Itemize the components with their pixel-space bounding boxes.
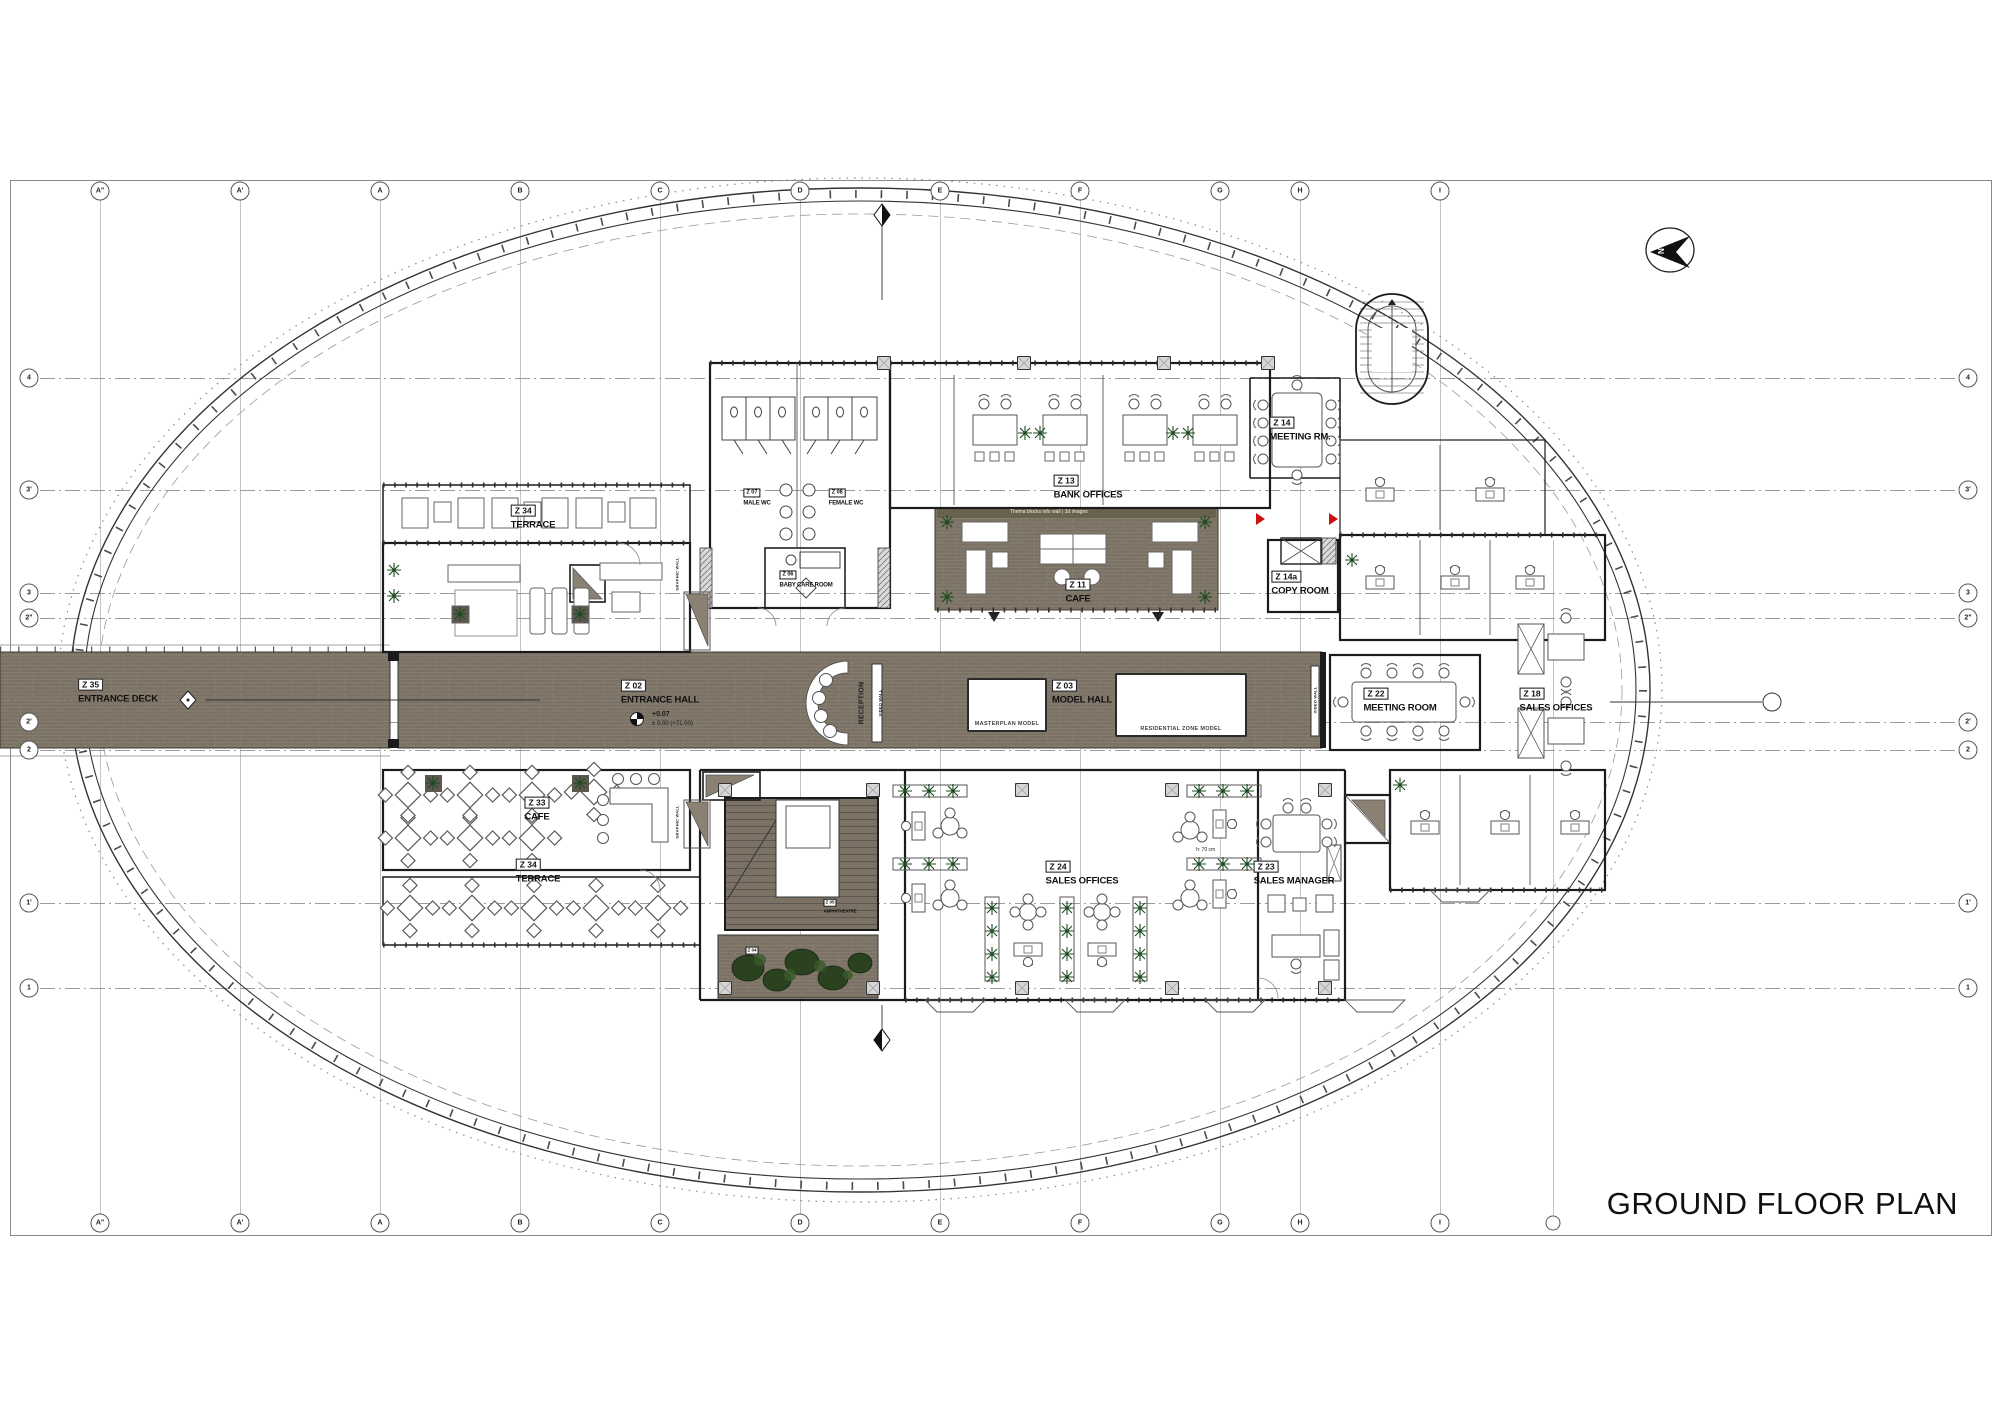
grid-column-marker-top: I <box>1431 182 1450 201</box>
bay-windows <box>925 890 1490 1012</box>
room-label-z-04: Z 04 <box>745 940 758 957</box>
room-name: BABY CARE ROOM <box>779 582 832 588</box>
room-name: COPY ROOM <box>1271 586 1328 596</box>
room-name: ENTRANCE HALL <box>621 695 699 705</box>
grid-row-marker-left: 4 <box>20 369 39 388</box>
wall-text: VIDEO WALL <box>878 690 883 717</box>
room-name: TERRACE <box>511 520 556 530</box>
annotation-text: Thema blocks info wall | 3d images <box>1010 509 1088 515</box>
room-id-badge: Z 33 <box>524 797 549 809</box>
grid-column-marker-bottom: G <box>1211 1214 1230 1233</box>
room-name: SALES OFFICES <box>1520 703 1593 713</box>
room-id-badge: Z 06 <box>779 570 796 579</box>
grid-column-marker-bottom: C <box>651 1214 670 1233</box>
room-name: MEETING ROOM <box>1363 703 1436 713</box>
room-id-badge: Z 23 <box>1254 861 1279 873</box>
grid-row-marker-left: 1' <box>20 894 39 913</box>
room-id-badge: Z 13 <box>1054 475 1079 487</box>
svg-text:N: N <box>1657 248 1666 254</box>
bank-office-desks <box>973 395 1237 461</box>
room-id-badge: Z 02 <box>621 680 646 692</box>
room-name: MODEL HALL <box>1052 695 1112 705</box>
room-name: SALES OFFICES <box>1046 876 1119 886</box>
grid-row-marker-right: 1 <box>1959 979 1978 998</box>
north-arrow-icon: N <box>1646 228 1694 272</box>
room-label-z-22: Z 22MEETING ROOM <box>1363 685 1436 714</box>
grid-row-marker-left: 3' <box>20 481 39 500</box>
room-id-badge: Z 04 <box>745 947 758 955</box>
room-label-z-08: Z 08FEMALE WC <box>829 481 864 506</box>
room-id-badge: Z 03 <box>1052 680 1077 692</box>
grid-column-marker-bottom: I <box>1431 1214 1450 1233</box>
grid-row-marker-left: 1 <box>20 979 39 998</box>
grid-row-marker-right: 3 <box>1959 584 1978 603</box>
wall-text: GRAPHIC WALL <box>675 805 680 838</box>
grid-row-marker-right: 1' <box>1959 894 1978 913</box>
grid-column-marker-bottom: A' <box>231 1214 250 1233</box>
grid-column-marker-bottom: D <box>791 1214 810 1233</box>
annotation-text: ± 0.00 (+71.00) <box>652 721 693 727</box>
room-id-badge: Z 14a <box>1271 571 1301 583</box>
wall-text: RECEPTION <box>859 682 866 725</box>
grid-column-marker-top: A <box>371 182 390 201</box>
room-id-badge: Z 05 <box>823 899 836 907</box>
room-name: MEETING RM. <box>1269 432 1330 442</box>
drawing-title: GROUND FLOOR PLAN <box>1607 1186 1958 1222</box>
room-label-z-06: Z 06BABY CARE ROOM <box>779 563 832 588</box>
grid-column-marker-top: F <box>1071 182 1090 201</box>
room-label-z-07: Z 07MALE WC <box>743 481 770 506</box>
grid-extra-marker <box>1546 1216 1561 1231</box>
annotation-text: h: 70 cm <box>1196 847 1215 853</box>
room-name: MALE WC <box>743 500 770 506</box>
room-id-badge: Z 08 <box>829 488 846 497</box>
entrance-deck-floor <box>0 645 1781 756</box>
room-name: FEMALE WC <box>829 500 864 506</box>
room-name: SALES MANAGER <box>1254 876 1335 886</box>
model-table: RESIDENTIAL ZONE MODEL <box>1115 673 1247 737</box>
room-id-badge: Z 14 <box>1269 417 1294 429</box>
room-label-z-24: Z 24SALES OFFICES <box>1046 858 1119 887</box>
room-name: CAFE <box>1065 594 1090 604</box>
room-label-z-03: Z 03MODEL HALL <box>1052 677 1112 706</box>
room-label-z-05: Z 05AMPHITHEATRE <box>823 892 856 915</box>
room-label-z-14: Z 14MEETING RM. <box>1269 414 1330 443</box>
grid-row-marker-left: 3 <box>20 584 39 603</box>
grid-column-marker-top: B <box>511 182 530 201</box>
cafe-z11 <box>935 508 1338 622</box>
room-id-badge: Z 24 <box>1046 861 1071 873</box>
sales-manager-z23 <box>1257 799 1339 998</box>
grid-row-marker-left: 2 <box>20 741 39 760</box>
annotation-text: +0.07 <box>652 711 670 718</box>
room-name: CAFE <box>524 812 549 822</box>
grid-column-marker-bottom: A" <box>91 1214 110 1233</box>
room-id-badge: Z 18 <box>1520 688 1545 700</box>
room-label-z-02: Z 02ENTRANCE HALL <box>621 677 699 706</box>
wall-text: VIDEO WALL <box>1313 687 1318 714</box>
room-label-z-33: Z 33CAFE <box>524 794 549 823</box>
grid-column-marker-top: D <box>791 182 810 201</box>
grid-row-marker-right: 2" <box>1959 609 1978 628</box>
grid-row-marker-right: 4 <box>1959 369 1978 388</box>
room-label-z-34: Z 34TERRACE <box>516 856 561 885</box>
room-label-z-11: Z 11CAFE <box>1065 576 1090 605</box>
room-id-badge: Z 11 <box>1065 579 1090 591</box>
grid-row-marker-left: 2' <box>20 713 39 732</box>
grid-row-marker-right: 2' <box>1959 713 1978 732</box>
room-name: ENTRANCE DECK <box>78 694 158 704</box>
grid-row-marker-left: 2" <box>20 609 39 628</box>
grid-column-marker-top: C <box>651 182 670 201</box>
room-label-z-35: Z 35ENTRANCE DECK <box>78 676 158 705</box>
grid-column-marker-top: H <box>1291 182 1310 201</box>
room-id-badge: Z 07 <box>743 488 760 497</box>
room-label-z-13: Z 13BANK OFFICES <box>1054 472 1123 501</box>
grid-column-marker-bottom: B <box>511 1214 530 1233</box>
planting-bed <box>718 935 878 998</box>
room-label-z-14a: Z 14aCOPY ROOM <box>1271 568 1328 597</box>
room-id-badge: Z 22 <box>1363 688 1388 700</box>
grid-column-marker-top: E <box>931 182 950 201</box>
room-label-z-34: Z 34TERRACE <box>511 502 556 531</box>
elevation-marker-icon <box>631 713 644 726</box>
grid-column-marker-bottom: A <box>371 1214 390 1233</box>
room-name: TERRACE <box>516 874 561 884</box>
model-table: MASTERPLAN MODEL <box>967 678 1047 732</box>
room-name: AMPHITHEATRE <box>823 910 856 915</box>
room-id-badge: Z 35 <box>78 679 103 691</box>
grid-row-marker-right: 3' <box>1959 481 1978 500</box>
cafe-z33-tables <box>378 762 687 937</box>
wall-text: GRAPHIC WALL <box>675 557 680 590</box>
grid-column-marker-bottom: F <box>1071 1214 1090 1233</box>
grid-column-marker-top: G <box>1211 182 1230 201</box>
room-name: BANK OFFICES <box>1054 490 1123 500</box>
room-id-badge: Z 34 <box>511 505 536 517</box>
grid-column-marker-top: A' <box>231 182 250 201</box>
grid-column-marker-top: A" <box>91 182 110 201</box>
plan-canvas: A"A"A'A'AABBCCDDEEFFGGHHII443'3'332"2"2'… <box>0 0 2000 1415</box>
room-label-z-23: Z 23SALES MANAGER <box>1254 858 1335 887</box>
room-id-badge: Z 34 <box>516 859 541 871</box>
grid-column-marker-bottom: E <box>931 1214 950 1233</box>
grid-column-marker-bottom: H <box>1291 1214 1310 1233</box>
grid-row-marker-right: 2 <box>1959 741 1978 760</box>
room-label-z-18: Z 18SALES OFFICES <box>1520 685 1593 714</box>
wc-interior <box>722 397 877 626</box>
